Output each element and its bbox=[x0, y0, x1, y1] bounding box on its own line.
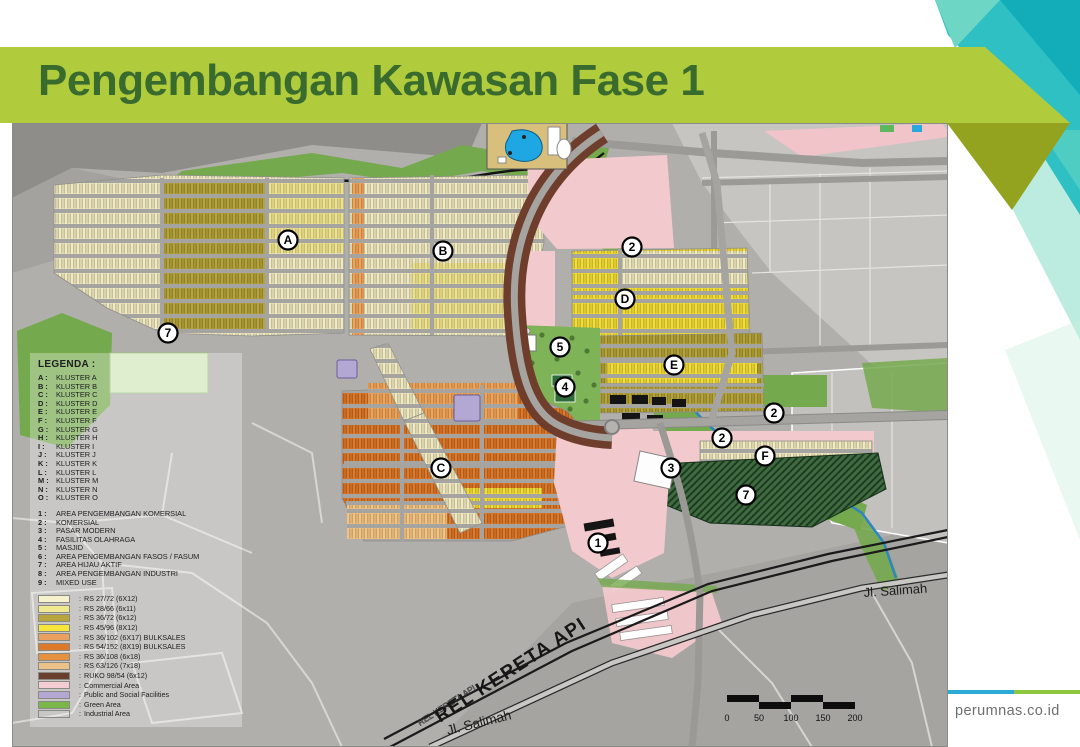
legend-color-swatch bbox=[38, 624, 70, 632]
svg-text:D: D bbox=[621, 292, 630, 306]
svg-text:7: 7 bbox=[743, 488, 750, 502]
legend-unit-type-row: :RS 36/108 (6x18) bbox=[38, 652, 236, 662]
map-marker-a: A bbox=[279, 231, 298, 250]
svg-text:2: 2 bbox=[771, 406, 778, 420]
svg-text:A: A bbox=[284, 233, 293, 247]
svg-text:4: 4 bbox=[562, 380, 569, 394]
legend-title: LEGENDA : bbox=[38, 359, 236, 370]
svg-text:50: 50 bbox=[754, 713, 764, 723]
svg-text:B: B bbox=[439, 244, 448, 258]
legend-unit-type-list: :RS 27/72 (6X12):RS 28/66 (6x11):RS 36/7… bbox=[38, 594, 236, 719]
legend-unit-type-row: :Industrial Area bbox=[38, 709, 236, 719]
page-title: Pengembangan Kawasan Fase 1 bbox=[38, 56, 938, 106]
roundabout bbox=[605, 420, 619, 434]
legend-unit-type-row: :RS 27/72 (6X12) bbox=[38, 594, 236, 604]
legend-color-swatch bbox=[38, 681, 70, 689]
legend-color-swatch bbox=[38, 672, 70, 680]
legend-color-swatch bbox=[38, 653, 70, 661]
map-marker-1: 1 bbox=[589, 534, 608, 553]
svg-text:2: 2 bbox=[629, 240, 636, 254]
map-marker-c: C bbox=[432, 459, 451, 478]
legend-unit-type-row: :RS 28/66 (6x11) bbox=[38, 604, 236, 614]
legend-unit-type-row: :RS 63/126 (7x18) bbox=[38, 661, 236, 671]
svg-text:E: E bbox=[670, 358, 678, 372]
legend-unit-type-row: :RS 45/96 (8X12) bbox=[38, 623, 236, 633]
svg-text:150: 150 bbox=[815, 713, 830, 723]
legend-color-swatch bbox=[38, 614, 70, 622]
svg-text:F: F bbox=[761, 449, 768, 463]
svg-text:100: 100 bbox=[783, 713, 798, 723]
water-park bbox=[487, 123, 571, 169]
presentation-slide: Jl. Salimah Jl. Salimah REL KERETA API R… bbox=[0, 0, 1080, 747]
map-marker-7: 7 bbox=[159, 324, 178, 343]
footer: perumnas.co.id bbox=[948, 690, 1080, 719]
map-marker-5: 5 bbox=[551, 338, 570, 357]
legend-facility-row: 9 :MIXED USE bbox=[38, 579, 236, 588]
legend-facility-list: 1 :AREA PENGEMBANGAN KOMERSIAL2 :KOMERSI… bbox=[38, 510, 236, 587]
map-marker-f: F bbox=[756, 447, 775, 466]
map-marker-3: 3 bbox=[662, 459, 681, 478]
legend-unit-type-row: :Green Area bbox=[38, 700, 236, 710]
svg-text:200: 200 bbox=[847, 713, 862, 723]
svg-text:3: 3 bbox=[668, 461, 675, 475]
map-marker-4: 4 bbox=[556, 378, 575, 397]
masterplan-map: Jl. Salimah Jl. Salimah REL KERETA API R… bbox=[12, 123, 948, 747]
legend-cluster-row: O :KLUSTER O bbox=[38, 494, 236, 503]
legend-cluster-list: A :KLUSTER AB :KLUSTER BC :KLUSTER CD :K… bbox=[38, 374, 236, 503]
legend-color-swatch bbox=[38, 662, 70, 670]
legend-color-swatch bbox=[38, 710, 70, 718]
legend-color-swatch bbox=[38, 595, 70, 603]
legend-color-swatch bbox=[38, 633, 70, 641]
map-marker-d: D bbox=[616, 290, 635, 309]
map-marker-7: 7 bbox=[737, 486, 756, 505]
map-marker-b: B bbox=[434, 242, 453, 261]
legend-color-swatch bbox=[38, 691, 70, 699]
legend-unit-type-row: :RUKO 98/54 (6x12) bbox=[38, 671, 236, 681]
footer-line-blue bbox=[948, 690, 1014, 694]
map-legend: LEGENDA : A :KLUSTER AB :KLUSTER BC :KLU… bbox=[30, 353, 242, 727]
svg-text:5: 5 bbox=[557, 340, 564, 354]
svg-text:0: 0 bbox=[724, 713, 729, 723]
legend-color-swatch bbox=[38, 605, 70, 613]
legend-color-swatch bbox=[38, 701, 70, 709]
map-marker-2: 2 bbox=[623, 238, 642, 257]
legend-unit-type-row: :Public and Social Facilities bbox=[38, 690, 236, 700]
svg-text:7: 7 bbox=[165, 326, 172, 340]
website-url: perumnas.co.id bbox=[948, 703, 1080, 719]
footer-accent-line bbox=[948, 690, 1080, 694]
svg-text:1: 1 bbox=[595, 536, 602, 550]
footer-line-green bbox=[1014, 690, 1080, 694]
svg-text:C: C bbox=[437, 461, 446, 475]
legend-unit-type-row: :RS 36/102 (6X17) BULKSALES bbox=[38, 633, 236, 643]
legend-unit-type-row: :RS 54/152 (8X19) BULKSALES bbox=[38, 642, 236, 652]
legend-color-swatch bbox=[38, 643, 70, 651]
map-marker-e: E bbox=[665, 356, 684, 375]
map-marker-2: 2 bbox=[765, 404, 784, 423]
legend-unit-type-row: :RS 36/72 (6x12) bbox=[38, 613, 236, 623]
svg-text:2: 2 bbox=[719, 431, 726, 445]
legend-unit-type-row: :Commercial Area bbox=[38, 681, 236, 691]
map-marker-2: 2 bbox=[713, 429, 732, 448]
